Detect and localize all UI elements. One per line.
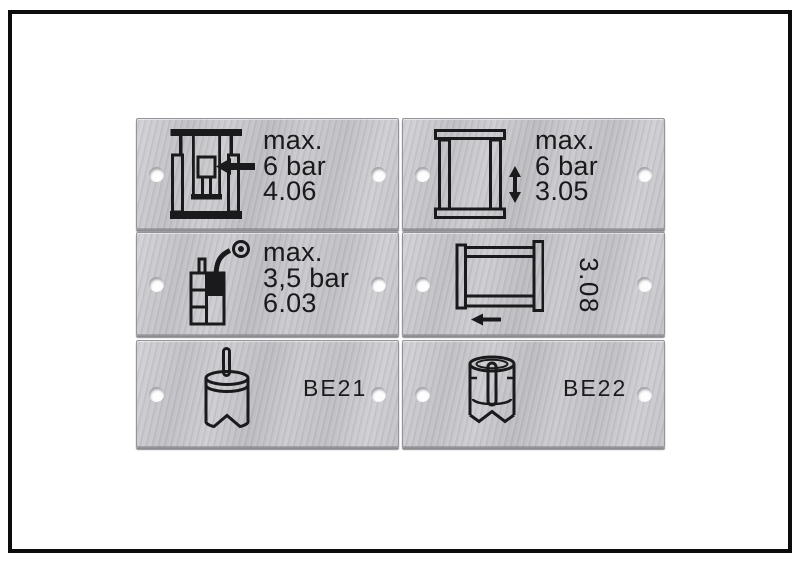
- label-plate-4-06: max. 6 bar 4.06: [136, 118, 399, 230]
- mounting-hole-right: [371, 167, 386, 182]
- filler-hose-gauge-icon: [189, 240, 253, 326]
- plate-code-label: BE22: [563, 375, 627, 402]
- mounting-hole-right: [371, 277, 386, 292]
- magazine-cylinder-cutaway-icon: [467, 355, 517, 427]
- plate-text-line: max.: [535, 128, 598, 154]
- carriage-left-arrow-icon: [455, 240, 544, 328]
- plate-text-line: max.: [263, 128, 326, 154]
- mounting-hole-left: [149, 387, 164, 402]
- mounting-hole-right: [637, 277, 652, 292]
- press-ram-left-arrow-icon: [170, 127, 255, 220]
- plate-text-line: 6.03: [263, 291, 349, 317]
- plate-text-block: max. 3,5 bar 6.03: [263, 240, 349, 317]
- mounting-hole-right: [637, 167, 652, 182]
- mounting-hole-left: [415, 387, 430, 402]
- mounting-hole-right: [371, 387, 386, 402]
- plate-text-line: max.: [263, 240, 349, 266]
- plate-text-block: max. 6 bar 4.06: [263, 128, 326, 205]
- mounting-hole-right: [637, 387, 652, 402]
- plate-code-label: BE21: [303, 375, 367, 402]
- lift-frame-vertical-arrow-icon: [434, 129, 521, 219]
- mounting-hole-left: [415, 167, 430, 182]
- plate-code-label: 3.08: [573, 257, 604, 314]
- magazine-cylinder-rod-icon: [203, 347, 251, 433]
- mounting-hole-left: [149, 277, 164, 292]
- plate-text-block: max. 6 bar 3.05: [535, 128, 598, 205]
- plate-text-line: 3.05: [535, 179, 598, 205]
- mounting-hole-left: [149, 167, 164, 182]
- plate-text-line: 4.06: [263, 179, 326, 205]
- mounting-hole-left: [415, 277, 430, 292]
- photo-frame: [8, 10, 792, 553]
- label-plate-3-08: 3.08: [402, 232, 665, 336]
- label-plate-be22: BE22: [402, 340, 665, 448]
- label-plate-6-03: max. 3,5 bar 6.03: [136, 232, 399, 336]
- label-plate-3-05: max. 6 bar 3.05: [402, 118, 665, 230]
- label-plate-be21: BE21: [136, 340, 399, 448]
